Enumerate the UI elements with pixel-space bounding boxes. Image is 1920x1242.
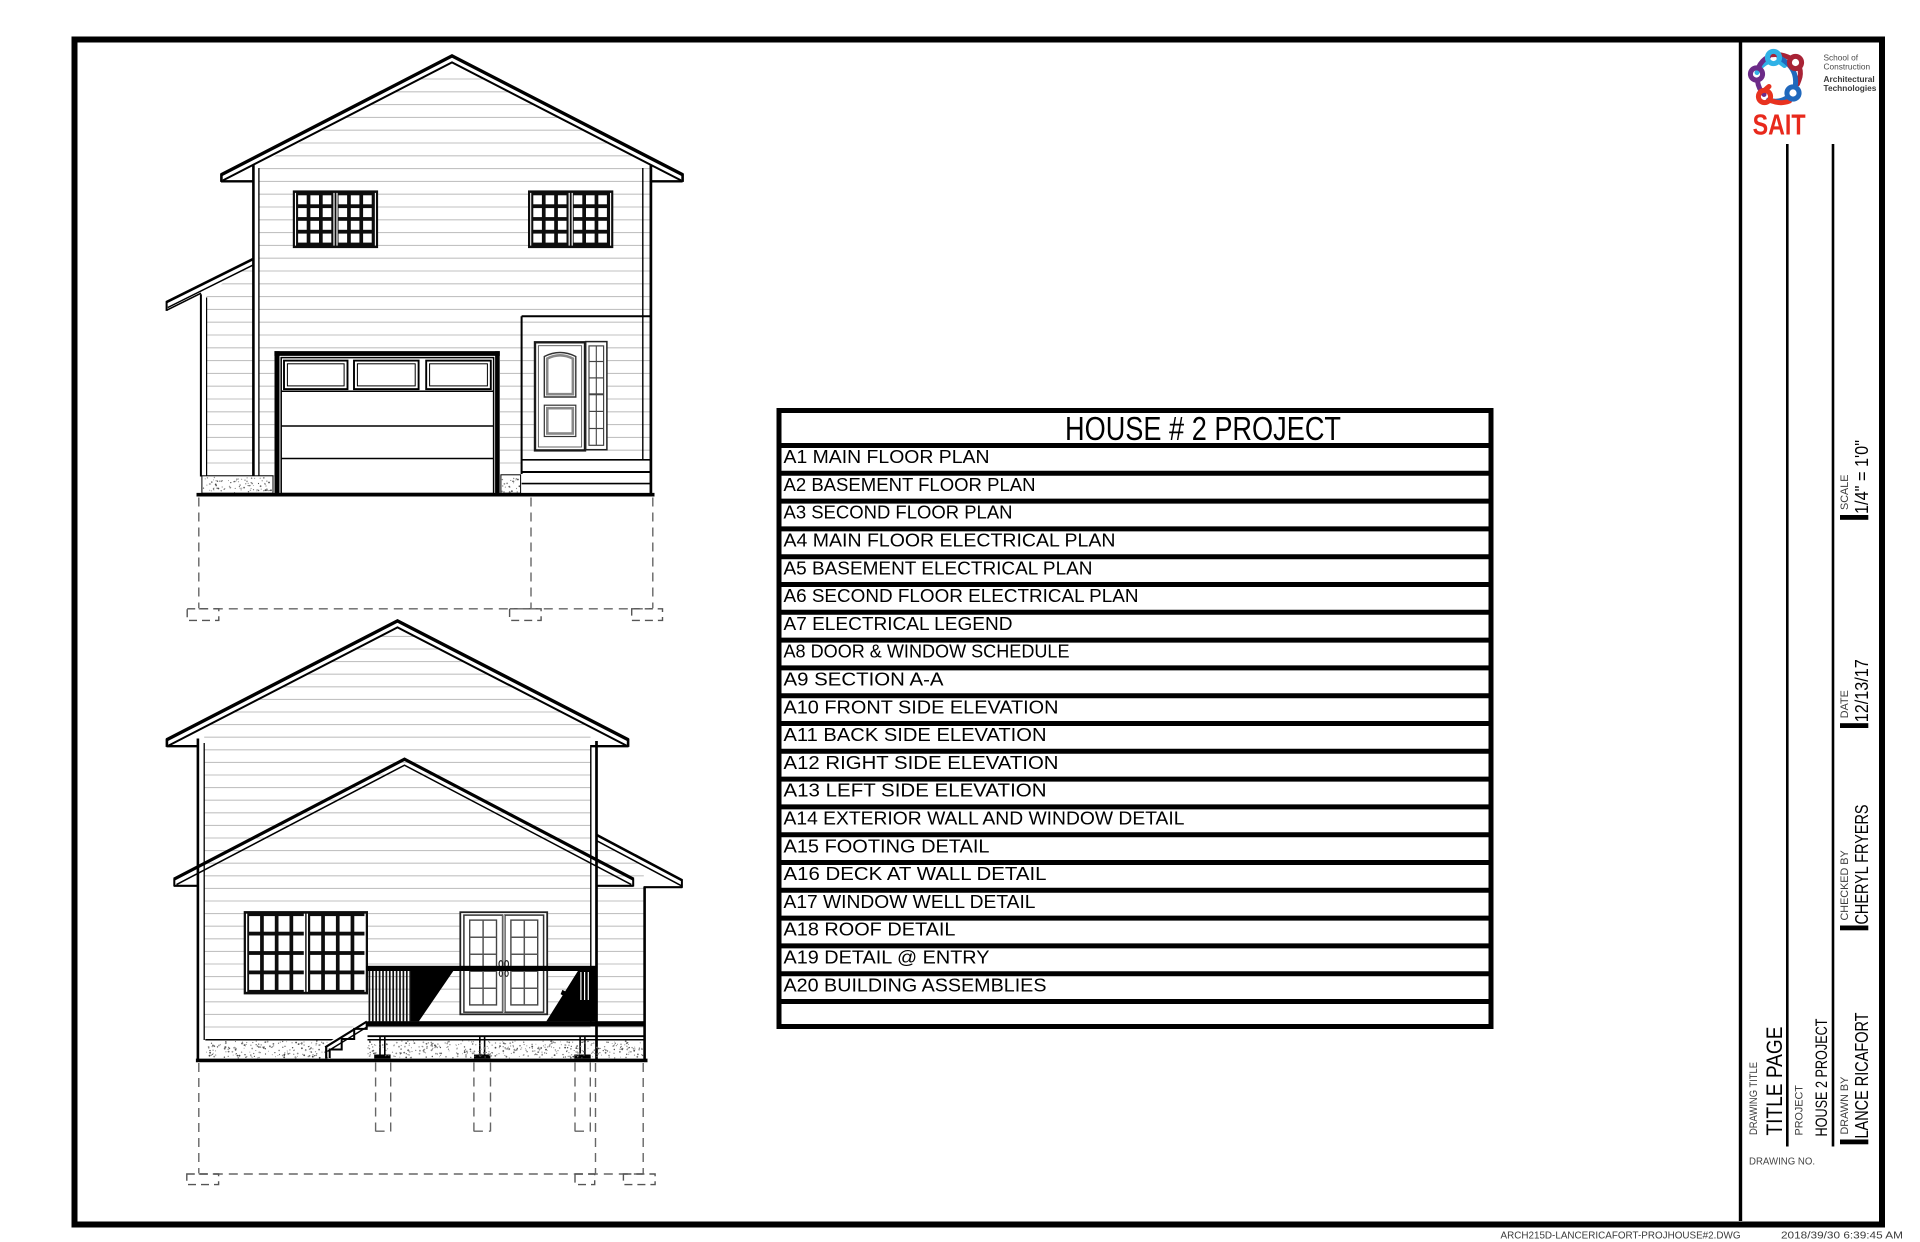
svg-text:A7 ELECTRICAL LEGEND: A7 ELECTRICAL LEGEND [784,613,1013,634]
svg-text:HOUSE 2 PROJECT: HOUSE 2 PROJECT [1812,1019,1831,1137]
svg-text:A8 DOOR & WINDOW SCHEDULE: A8 DOOR & WINDOW SCHEDULE [784,641,1070,662]
svg-text:A4 MAIN FLOOR ELECTRICAL PLAN: A4 MAIN FLOOR ELECTRICAL PLAN [784,530,1116,551]
svg-text:A11 BACK SIDE ELEVATION: A11 BACK SIDE ELEVATION [784,724,1047,745]
svg-text:DATE: DATE [1839,690,1851,718]
svg-text:A13 LEFT SIDE ELEVATION: A13 LEFT SIDE ELEVATION [784,780,1047,801]
svg-text:A18 ROOF DETAIL: A18 ROOF DETAIL [784,919,956,940]
svg-text:HOUSE # 2 PROJECT: HOUSE # 2 PROJECT [1065,410,1341,447]
svg-text:SCALE: SCALE [1839,475,1851,510]
svg-text:A20 BUILDING ASSEMBLIES: A20 BUILDING ASSEMBLIES [784,974,1047,995]
svg-text:12/13/17: 12/13/17 [1852,659,1872,722]
svg-text:A14 EXTERIOR WALL AND WINDOW D: A14 EXTERIOR WALL AND WINDOW DETAIL [784,808,1185,829]
svg-text:TITLE PAGE: TITLE PAGE [1762,1027,1787,1136]
svg-text:A10 FRONT SIDE ELEVATION: A10 FRONT SIDE ELEVATION [784,696,1059,717]
svg-text:A19 DETAIL @ ENTRY: A19 DETAIL @ ENTRY [784,947,990,968]
svg-text:A1 MAIN FLOOR PLAN: A1 MAIN FLOOR PLAN [784,446,990,467]
svg-text:PROJECT: PROJECT [1794,1085,1806,1136]
svg-text:A3 SECOND FLOOR PLAN: A3 SECOND FLOOR PLAN [784,502,1013,523]
svg-text:A6 SECOND FLOOR ELECTRICAL PLA: A6 SECOND FLOOR ELECTRICAL PLAN [784,585,1139,606]
svg-text:Construction: Construction [1824,61,1871,71]
svg-text:DRAWING TITLE: DRAWING TITLE [1748,1062,1760,1135]
svg-text:A5 BASEMENT ELECTRICAL PLAN: A5 BASEMENT ELECTRICAL PLAN [784,557,1093,578]
svg-text:A17 WINDOW WELL DETAIL: A17 WINDOW WELL DETAIL [784,891,1036,912]
svg-text:A15 FOOTING DETAIL: A15 FOOTING DETAIL [784,835,990,856]
svg-text:DRAWN BY: DRAWN BY [1839,1077,1851,1135]
svg-text:DRAWING NO.: DRAWING NO. [1749,1156,1815,1168]
svg-text:ARCH215D-LANCERICAFORT-PROJHOU: ARCH215D-LANCERICAFORT-PROJHOUSE#2.DWG [1501,1230,1741,1242]
svg-text:1/4" = 1'0": 1/4" = 1'0" [1852,440,1872,514]
svg-text:2018/39/30 6:39:45 AM: 2018/39/30 6:39:45 AM [1781,1230,1903,1242]
svg-text:A2 BASEMENT FLOOR PLAN: A2 BASEMENT FLOOR PLAN [784,474,1036,495]
svg-text:LANCE RICAFORT: LANCE RICAFORT [1852,1013,1872,1139]
svg-text:CHERYL FRYERS: CHERYL FRYERS [1852,805,1872,925]
svg-text:A12 RIGHT SIDE ELEVATION: A12 RIGHT SIDE ELEVATION [784,752,1059,773]
svg-text:A9 SECTION A-A: A9 SECTION A-A [784,669,945,690]
svg-text:A16 DECK AT WALL DETAIL: A16 DECK AT WALL DETAIL [784,863,1047,884]
svg-text:Technologies: Technologies [1824,83,1877,93]
svg-text:SAIT: SAIT [1753,110,1806,142]
svg-text:CHECKED BY: CHECKED BY [1839,850,1851,920]
